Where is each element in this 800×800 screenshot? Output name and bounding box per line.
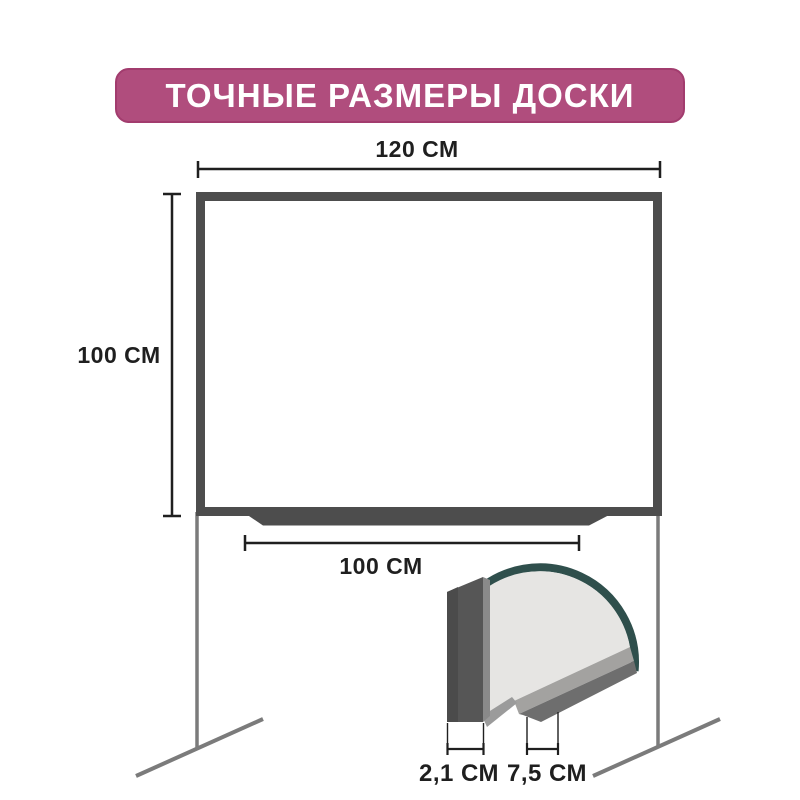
- frame-thickness-label: 2,1 СМ: [419, 760, 499, 787]
- frame-thickness-dimension-line: [448, 743, 484, 755]
- dimension-board-width: 120 СМ: [198, 136, 660, 178]
- tray-depth-label: 7,5 СМ: [507, 760, 587, 787]
- tray-depth-dimension-line: [527, 743, 558, 755]
- foot-line-left: [136, 719, 263, 776]
- width-dimension-label: 120 СМ: [375, 136, 458, 162]
- tray-width-dimension-label: 100 СМ: [339, 553, 422, 579]
- marker-tray-shape: [246, 514, 611, 526]
- height-dimension-label: 100 СМ: [77, 342, 160, 368]
- width-dimension-line: [198, 161, 660, 178]
- board-dimensions-diagram: 120 СМ 100 СМ 100 СМ: [0, 0, 800, 800]
- detail-frame-slab-shadow: [447, 587, 458, 722]
- dimension-tray-depth: 7,5 СМ: [507, 712, 587, 787]
- tray-width-dimension-line: [245, 535, 579, 551]
- dimension-frame-thickness: 2,1 СМ: [419, 723, 499, 787]
- height-dimension-line: [163, 194, 181, 516]
- detail-magnifier: 2,1 СМ 7,5 СМ: [419, 567, 637, 787]
- board-frame-rect: [201, 197, 658, 512]
- whiteboard: [201, 197, 658, 526]
- infographic-poster: { "title": { "text": "ТОЧНЫЕ РАЗМЕРЫ ДОС…: [0, 0, 800, 800]
- dimension-board-height: 100 СМ: [77, 194, 181, 516]
- detail-frame-slab-edge: [483, 577, 490, 722]
